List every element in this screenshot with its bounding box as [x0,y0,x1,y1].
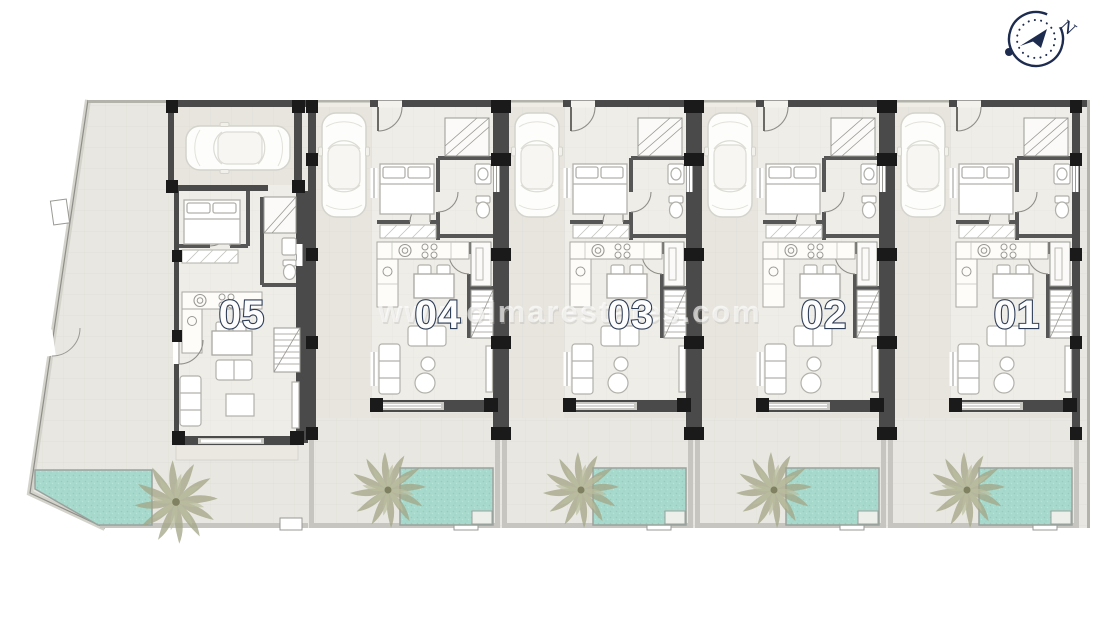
compass-dot [1005,48,1013,56]
site-plan-canvas: www.olmarestates.com www.olmarestates.co… [0,0,1110,626]
unit-label-04: 04 [415,293,462,337]
unit-label-03: 03 [608,293,655,337]
wardrobe [182,250,238,263]
boundary-box [50,199,69,225]
unit-label-01: 01 [994,293,1041,337]
unit-label-02: 02 [801,293,848,337]
north-label: N [1056,15,1080,40]
compass-needle-icon [1020,29,1047,48]
floorplan-page: www.olmarestates.com www.olmarestates.co… [0,0,1110,626]
pool [35,470,152,525]
garden-gate [280,518,302,530]
terrace [176,445,298,460]
unit-label-05: 05 [219,293,266,337]
bed [184,200,240,244]
staircase [274,328,300,372]
compass: N [1000,3,1080,75]
